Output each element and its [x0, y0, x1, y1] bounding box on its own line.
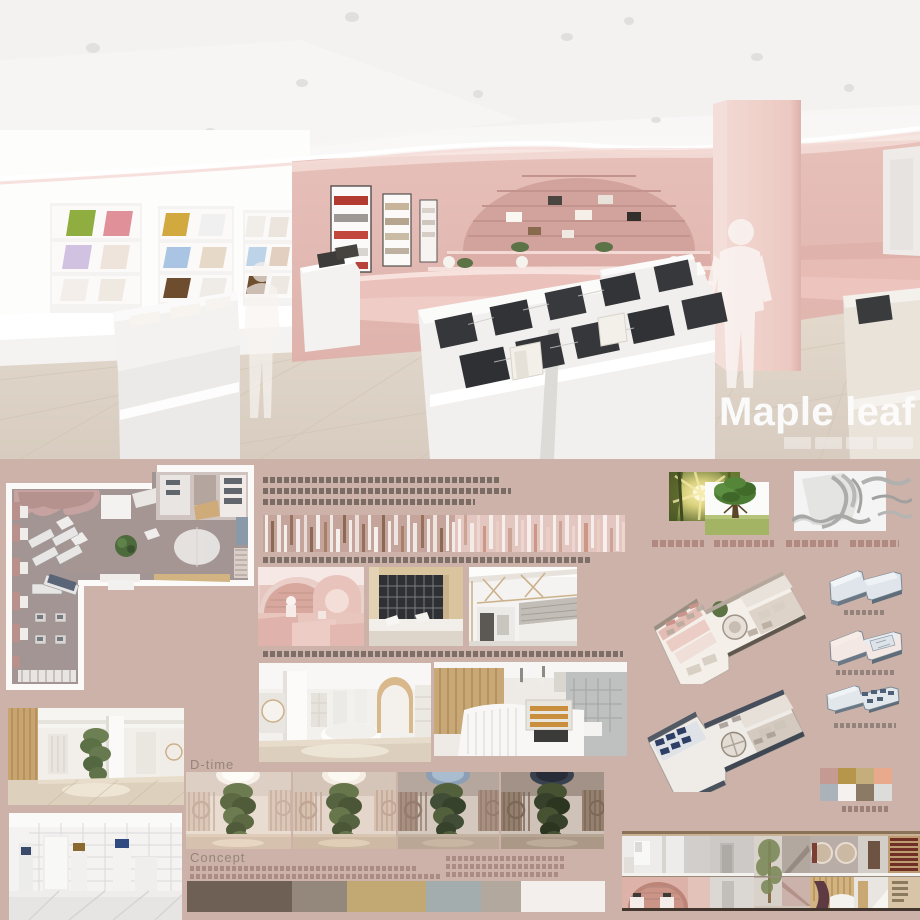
- svg-text:Maple leaf: Maple leaf: [719, 390, 916, 434]
